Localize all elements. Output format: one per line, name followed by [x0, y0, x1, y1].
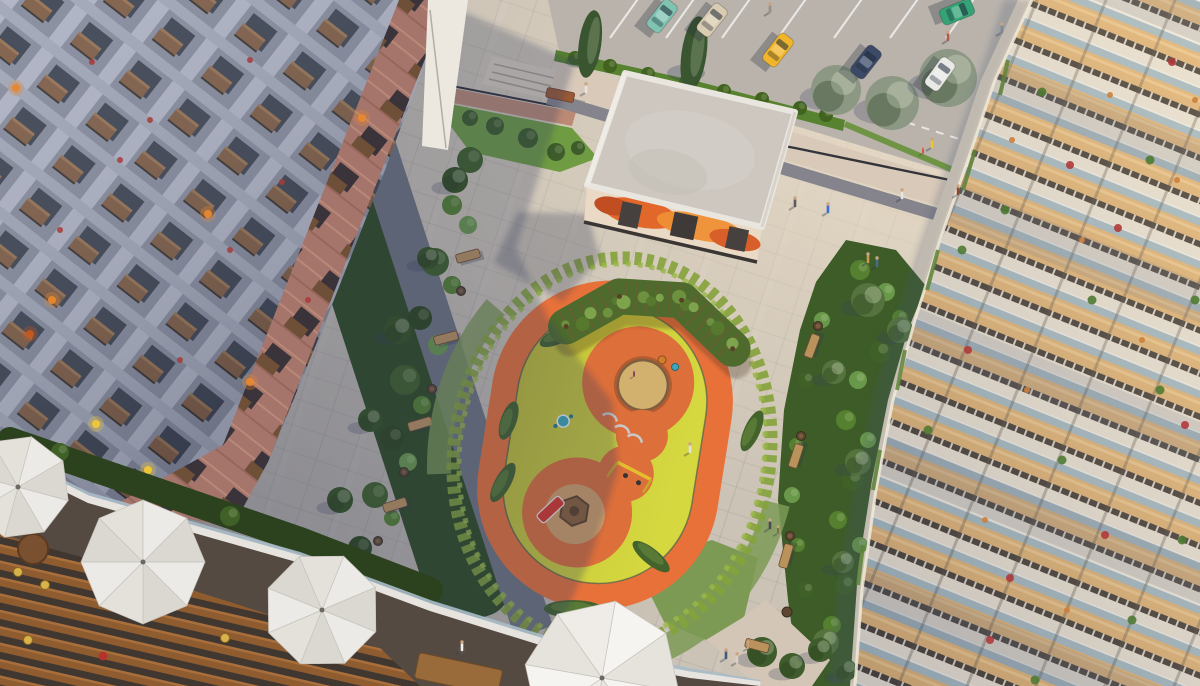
bush-light [723, 86, 729, 92]
balcony-furniture [1174, 177, 1180, 183]
person-head [633, 369, 635, 371]
balcony-flowers [305, 297, 311, 303]
balcony-flowers [964, 346, 972, 354]
person-head [793, 196, 796, 199]
terrace-chair [24, 636, 33, 645]
lit-window [358, 114, 366, 122]
balcony-flowers [117, 157, 123, 163]
person-head [826, 202, 829, 205]
spring-rider [671, 363, 679, 371]
balcony-plant [1156, 386, 1165, 395]
balcony-furniture [1064, 607, 1070, 613]
person-shadow [822, 213, 827, 216]
person-head [735, 652, 738, 655]
balcony-plant [1191, 296, 1200, 305]
person-head [866, 252, 869, 255]
patio-umbrella [268, 556, 376, 664]
person-head [922, 146, 924, 148]
bottom-planter [782, 607, 792, 617]
bush-light [609, 61, 615, 67]
person-shadow [720, 659, 725, 662]
lit-window [12, 84, 20, 92]
scene-svg [0, 0, 1200, 686]
bush-light [837, 513, 845, 521]
lit-window [144, 466, 152, 474]
lit-window [246, 378, 254, 386]
balcony-plant [1146, 156, 1155, 165]
balcony-flowers [1101, 531, 1109, 539]
bush-light [577, 143, 583, 149]
balcony-plant [958, 246, 967, 255]
balcony-flowers [1006, 574, 1014, 582]
terrace-table [18, 534, 48, 564]
planter-top [816, 324, 821, 329]
balcony-plant [1058, 456, 1067, 465]
tree-light [818, 640, 830, 652]
umbrella-pole [600, 676, 605, 681]
person-shadow [789, 207, 794, 210]
person-head [747, 640, 750, 643]
person-head [875, 256, 878, 259]
person-head [688, 442, 691, 445]
person [789, 196, 797, 210]
balcony-flowers [147, 117, 153, 123]
person-head [930, 137, 933, 140]
person-head [900, 188, 903, 191]
bush-light [761, 94, 767, 100]
balcony-furniture [982, 517, 988, 523]
balcony-plant [1128, 616, 1137, 625]
balcony-flowers [279, 179, 285, 185]
person-head [768, 2, 771, 5]
terrace-chair [14, 568, 23, 577]
bush-light [885, 285, 893, 293]
tree-light [832, 362, 844, 374]
bush-light [845, 413, 854, 422]
balcony-flowers [227, 247, 233, 253]
balcony-furniture [1192, 97, 1198, 103]
balcony-furniture [1009, 137, 1015, 143]
balcony-flowers [1168, 58, 1176, 66]
person-head [777, 525, 780, 528]
person-head [946, 30, 949, 33]
person-head [584, 82, 587, 85]
bush-light [791, 489, 798, 496]
person-head [956, 184, 959, 187]
planter-top [799, 434, 804, 439]
balcony-furniture [1024, 387, 1030, 393]
person-head [768, 518, 771, 521]
balcony-plant [924, 426, 933, 435]
tree-light [865, 286, 882, 303]
bush-light [805, 374, 812, 381]
person [822, 202, 830, 216]
red-cushion [99, 652, 108, 661]
lit-window [48, 296, 56, 304]
lit-window [204, 210, 212, 218]
bush-light [805, 584, 812, 591]
aerial-courtyard-render [0, 0, 1200, 686]
pavilion-door [670, 212, 698, 240]
patio-umbrella [81, 500, 205, 624]
balcony-flowers [1181, 421, 1189, 429]
bush-light [821, 314, 828, 321]
bush-light [797, 540, 803, 546]
planter-top [788, 534, 793, 539]
balcony-flowers [986, 636, 994, 644]
person-head [724, 648, 727, 651]
balcony-flowers [57, 227, 63, 233]
balcony-flowers [89, 59, 95, 65]
balcony-plant [1178, 536, 1187, 545]
balcony-furniture [1139, 337, 1145, 343]
lit-window [92, 420, 100, 428]
terrace-chair [221, 634, 230, 643]
bush-light [555, 145, 563, 153]
umbrella-pole [320, 608, 325, 613]
terrace-chair [41, 581, 50, 590]
balcony-plant [1031, 676, 1040, 685]
bush-light [229, 509, 238, 518]
person-head [1000, 22, 1003, 25]
lit-window [26, 330, 34, 338]
balcony-flowers [1114, 224, 1122, 232]
umbrella-pole [16, 485, 21, 490]
balcony-flowers [1066, 161, 1074, 169]
balcony-flowers [177, 357, 183, 363]
bush-light [647, 69, 653, 75]
bush-light [857, 373, 865, 381]
balcony-furniture [1079, 237, 1085, 243]
balcony-flowers [247, 57, 253, 63]
person-head [460, 640, 463, 643]
balcony-furniture [1107, 92, 1113, 98]
umbrella-pole [141, 560, 146, 565]
bush-light [59, 445, 67, 453]
balcony-plant [1001, 206, 1010, 215]
balcony-plant [1088, 296, 1097, 305]
balcony-plant [1038, 88, 1047, 97]
